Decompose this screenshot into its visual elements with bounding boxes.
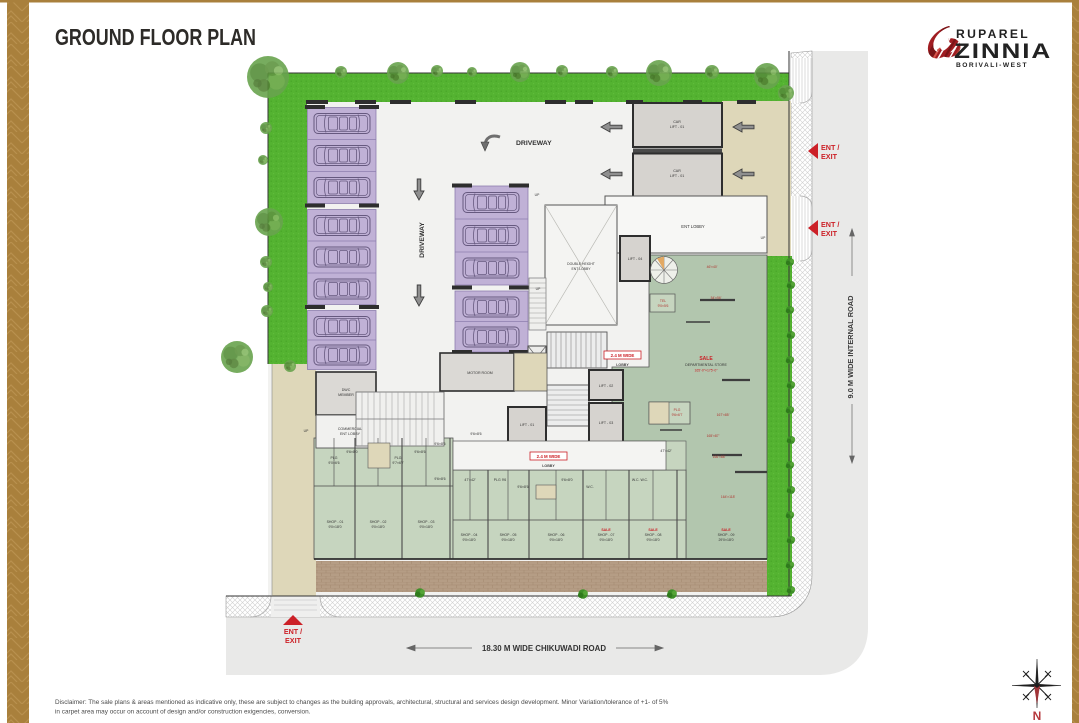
svg-text:ENT LOBBY: ENT LOBBY (681, 224, 705, 229)
svg-text:DRIVEWAY: DRIVEWAY (419, 222, 426, 258)
svg-text:9'0×5'6: 9'0×5'6 (658, 304, 669, 308)
svg-text:9'6×8'6: 9'6×8'6 (517, 485, 528, 489)
svg-text:9'6×8'0: 9'6×8'0 (346, 450, 357, 454)
svg-text:9.0 M WIDE INTERNAL ROAD: 9.0 M WIDE INTERNAL ROAD (846, 295, 855, 399)
svg-text:18.30 M WIDE CHIKUWADI ROAD: 18.30 M WIDE CHIKUWADI ROAD (482, 644, 606, 653)
svg-text:9'6×6'7: 9'6×6'7 (672, 413, 683, 417)
svg-text:47'×42': 47'×42' (660, 449, 671, 453)
svg-text:COMMERCIAL: COMMERCIAL (338, 427, 362, 431)
svg-text:SHOP - 09: SHOP - 09 (718, 533, 735, 537)
svg-text:SHOP - 01: SHOP - 01 (327, 520, 344, 524)
svg-text:SALE: SALE (699, 356, 713, 362)
svg-text:9'6×8'6: 9'6×8'6 (414, 450, 425, 454)
svg-text:Disclaimer: The sale plans & a: Disclaimer: The sale plans & areas menti… (55, 699, 669, 706)
svg-text:LOBBY: LOBBY (542, 464, 555, 468)
svg-text:LIFT - 03: LIFT - 03 (599, 421, 614, 425)
svg-text:SHOP - 07: SHOP - 07 (598, 533, 615, 537)
svg-text:LIFT - 01: LIFT - 01 (520, 423, 535, 427)
svg-text:DEPARTMENTAL STORE: DEPARTMENTAL STORE (685, 363, 727, 367)
svg-text:164'×118': 164'×118' (721, 495, 736, 499)
svg-text:9'0×18'0: 9'0×18'0 (646, 538, 659, 542)
svg-text:166'×88': 166'×88' (713, 455, 726, 459)
svg-text:165'×87': 165'×87' (707, 434, 720, 438)
svg-text:9'0×18'0: 9'0×18'0 (501, 538, 514, 542)
svg-text:BORIVALI-WEST: BORIVALI-WEST (956, 62, 1028, 69)
svg-text:LIFT - 02: LIFT - 02 (599, 384, 614, 388)
svg-text:LIFT - 01: LIFT - 01 (670, 174, 685, 178)
svg-text:SHOP - 02: SHOP - 02 (370, 520, 387, 524)
svg-text:ENT /: ENT / (821, 143, 839, 152)
svg-text:9'6×8'6: 9'6×8'6 (434, 442, 445, 446)
svg-text:9'0×18'0: 9'0×18'0 (419, 525, 432, 529)
svg-text:LIFT - 01: LIFT - 01 (670, 125, 685, 129)
svg-text:SHOP - 03: SHOP - 03 (418, 520, 435, 524)
svg-text:ENT /: ENT / (821, 220, 839, 229)
svg-text:TEL: TEL (660, 299, 666, 303)
svg-text:SALE: SALE (648, 528, 658, 532)
svg-text:SHOP - 05: SHOP - 05 (500, 533, 517, 537)
svg-text:9'6×8'6: 9'6×8'6 (470, 432, 481, 436)
svg-text:PLG: PLG (674, 408, 681, 412)
svg-text:PLG 9'6: PLG 9'6 (494, 478, 507, 482)
svg-text:SHOP - 08: SHOP - 08 (645, 533, 662, 537)
svg-text:W.C.: W.C. (586, 485, 594, 489)
svg-text:9'6×8'0: 9'6×8'0 (561, 478, 572, 482)
svg-text:9'0×6'6: 9'0×6'6 (328, 461, 339, 465)
svg-text:UP: UP (536, 287, 541, 291)
svg-text:LOBBY: LOBBY (616, 363, 629, 367)
svg-text:LIFT - 04: LIFT - 04 (628, 257, 643, 261)
svg-text:ENT LOBBY: ENT LOBBY (572, 267, 592, 271)
svg-text:46'×40': 46'×40' (707, 265, 718, 269)
svg-text:GROUND FLOOR PLAN: GROUND FLOOR PLAN (55, 24, 256, 50)
svg-text:MOTOR ROOM: MOTOR ROOM (467, 371, 493, 375)
svg-text:CAR: CAR (673, 120, 681, 124)
svg-text:SALE: SALE (721, 528, 731, 532)
svg-text:EXIT: EXIT (821, 152, 838, 161)
svg-text:EXIT: EXIT (821, 229, 838, 238)
svg-text:167'×85': 167'×85' (717, 413, 730, 417)
svg-text:2.4 M WIDE: 2.4 M WIDE (537, 454, 561, 459)
svg-text:PLG: PLG (330, 456, 337, 460)
svg-text:ENT /: ENT / (284, 627, 302, 636)
svg-text:UP: UP (304, 429, 309, 433)
svg-text:SALE: SALE (601, 528, 611, 532)
svg-text:9'0×18'0: 9'0×18'0 (371, 525, 384, 529)
svg-text:MEMBER: MEMBER (338, 393, 354, 397)
svg-text:W.C. W.C.: W.C. W.C. (632, 478, 648, 482)
svg-text:9'6×8'6: 9'6×8'6 (434, 477, 445, 481)
svg-text:PLG: PLG (394, 456, 401, 460)
svg-text:in carpet area may occur on ac: in carpet area may occur on account of d… (55, 709, 311, 716)
svg-text:9'7×6'7: 9'7×6'7 (392, 461, 403, 465)
svg-text:54'×56': 54'×56' (711, 296, 722, 300)
svg-text:ENT LOBBY: ENT LOBBY (340, 432, 361, 436)
svg-text:165'-0"×175'-0": 165'-0"×175'-0" (694, 369, 718, 373)
svg-text:9'0×18'0: 9'0×18'0 (599, 538, 612, 542)
svg-text:SHOP - 04: SHOP - 04 (461, 533, 478, 537)
svg-text:DRIVEWAY: DRIVEWAY (516, 140, 552, 147)
svg-text:9'0×18'0: 9'0×18'0 (549, 538, 562, 542)
svg-text:ZINNIA: ZINNIA (954, 40, 1052, 63)
svg-text:DOUBLE HEIGHT: DOUBLE HEIGHT (567, 262, 595, 266)
svg-text:N: N (1033, 709, 1042, 723)
svg-text:UP: UP (535, 193, 540, 197)
svg-text:CAR: CAR (673, 169, 681, 173)
svg-text:47'×42': 47'×42' (464, 478, 475, 482)
svg-text:9'0×18'0: 9'0×18'0 (328, 525, 341, 529)
svg-text:2.4 M WIDE: 2.4 M WIDE (611, 353, 635, 358)
svg-text:UP: UP (761, 236, 766, 240)
svg-text:EXIT: EXIT (285, 636, 302, 645)
svg-text:DWC: DWC (342, 388, 351, 392)
svg-text:29'0×18'0: 29'0×18'0 (718, 538, 733, 542)
svg-text:9'0×18'0: 9'0×18'0 (462, 538, 475, 542)
svg-text:SHOP - 06: SHOP - 06 (548, 533, 565, 537)
